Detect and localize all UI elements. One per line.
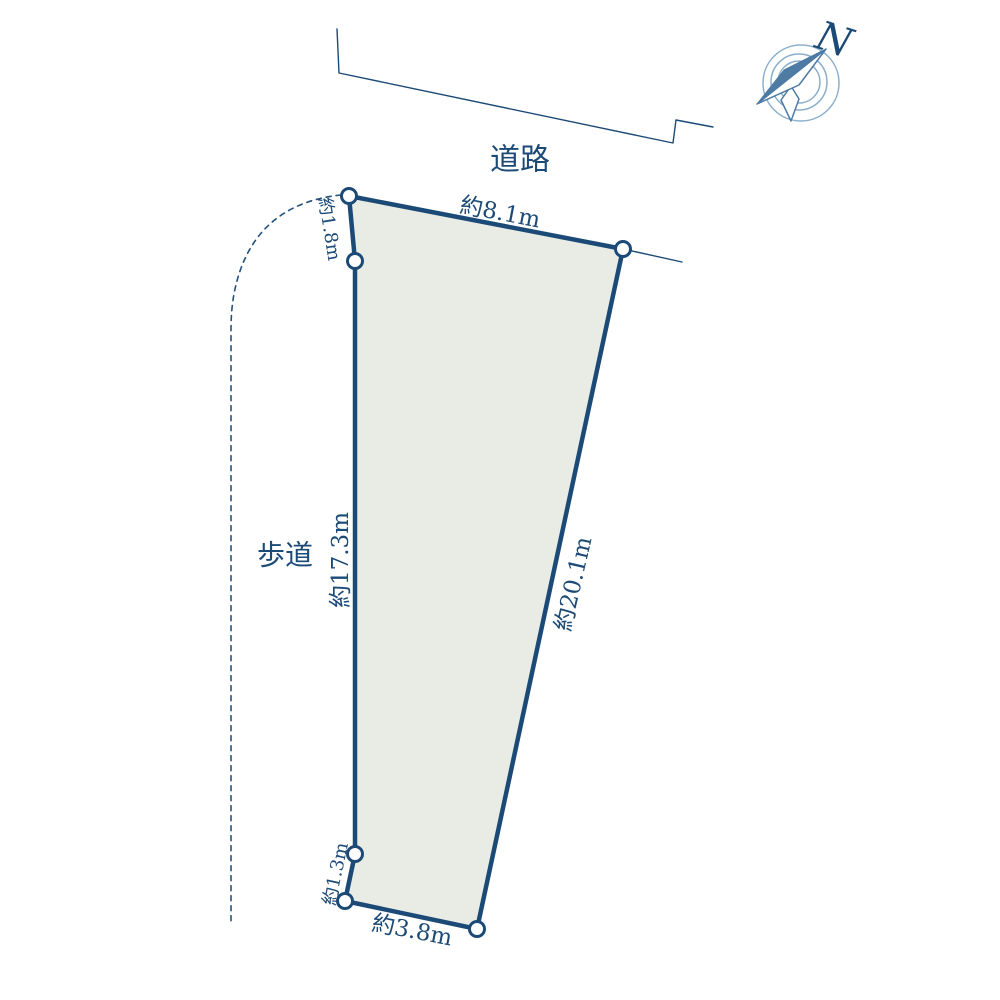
vertex-marker-top-right (616, 242, 631, 257)
vertex-marker-bottom-right (470, 922, 485, 937)
vertex-marker-left-upper (348, 254, 363, 269)
compass-rose: N (757, 12, 860, 121)
dimension-upper-left-edge: 約1.8m (314, 196, 345, 262)
road-boundary-line (337, 29, 713, 143)
sidewalk-label: 歩道 (257, 539, 313, 572)
vertex-marker-top-left (342, 189, 357, 204)
dimension-left-edge: 約17.3m (328, 512, 354, 608)
road-label: 道路 (490, 143, 550, 178)
road-edge-extension-line (623, 249, 682, 262)
site-plan-canvas: 道路 歩道 約8.1m 約1.8m 約17.3m 約20.1m 約1.3m 約3… (0, 0, 1000, 1000)
site-plan-diagram: 道路 歩道 約8.1m 約1.8m 約17.3m 約20.1m 約1.3m 約3… (0, 0, 1000, 1000)
